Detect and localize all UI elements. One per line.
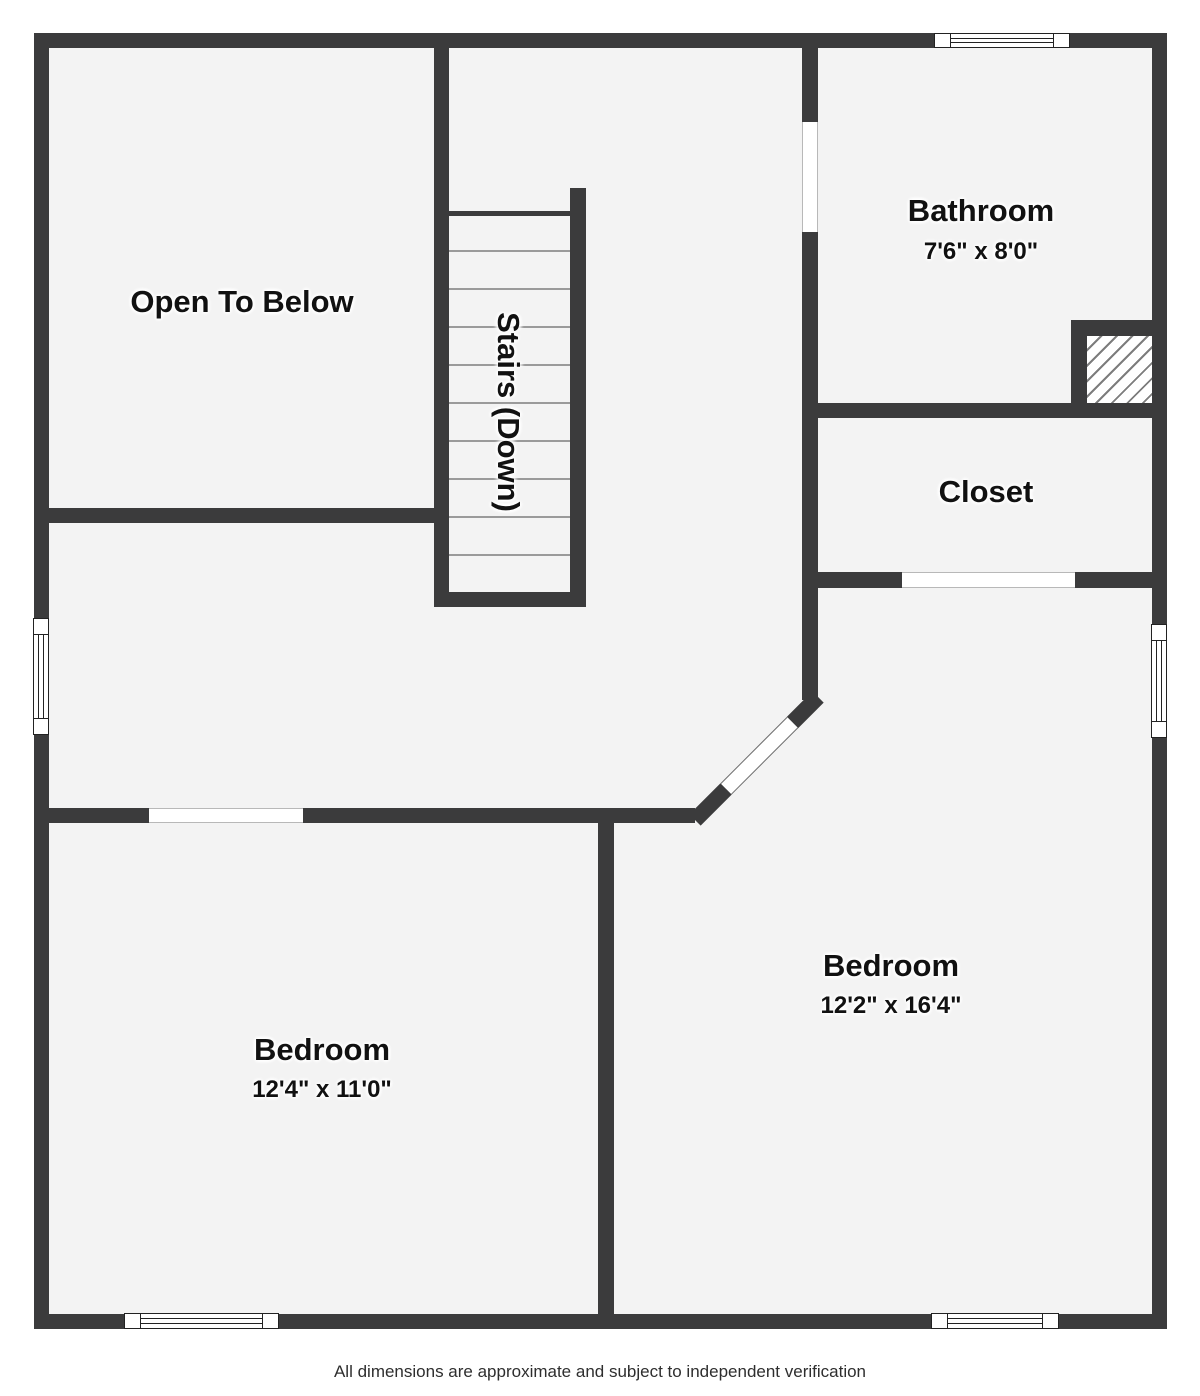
room-label-stairs: Stairs (Down)	[490, 312, 526, 512]
closet-bottom-wall-left	[818, 572, 902, 588]
stair-tread-line	[449, 288, 570, 290]
right-wall-window	[1151, 624, 1167, 738]
room-label-bathroom: Bathroom	[908, 193, 1054, 229]
stairs-bottom-wall	[434, 592, 586, 607]
stairs-top-edge	[449, 211, 570, 216]
window-end	[125, 1314, 141, 1328]
stair-tread-line	[449, 516, 570, 518]
bathroom-left-wall-upper	[802, 48, 818, 122]
room-label-bedroom-right: Bedroom	[823, 948, 959, 984]
closet-bottom-wall-right	[1075, 572, 1152, 588]
bedroom-top-wall-right	[303, 808, 695, 823]
room-label-bedroom-left: Bedroom	[254, 1032, 390, 1068]
window-glass	[34, 635, 48, 718]
window-glass	[1152, 641, 1166, 721]
bathroom-closet-divider-wall	[818, 403, 1152, 418]
room-label-closet: Closet	[939, 474, 1034, 510]
window-end	[1042, 1314, 1058, 1328]
bedroom-left-door-opening	[149, 808, 303, 823]
room-label-open-to-below: Open To Below	[130, 284, 353, 320]
bedroom-left-window	[124, 1313, 279, 1329]
window-end	[1152, 625, 1166, 641]
stair-tread-line	[449, 250, 570, 252]
window-end	[935, 34, 951, 47]
window-end	[34, 619, 48, 635]
window-glass	[951, 34, 1053, 47]
bedroom-divider-wall	[598, 823, 614, 1314]
bathroom-door-opening	[802, 122, 818, 232]
hall-right-wall-below-closet	[802, 572, 818, 700]
floorplan: Open To Below Stairs (Down) Bathroom 7'6…	[0, 0, 1200, 1396]
window-end	[1152, 721, 1166, 737]
window-glass	[141, 1314, 262, 1328]
window-end	[1053, 34, 1069, 47]
closet-door-opening	[902, 572, 1075, 588]
disclaimer-text: All dimensions are approximate and subje…	[0, 1362, 1200, 1382]
bedroom-right-window	[931, 1313, 1059, 1329]
bedroom-top-wall-left	[34, 808, 149, 823]
window-end	[34, 718, 48, 734]
bathroom-left-wall-lower	[802, 232, 818, 572]
stairs-right-wall	[570, 188, 586, 607]
room-dims-bedroom-left: 12'4" x 11'0"	[252, 1076, 392, 1104]
open-to-below-bottom-wall	[34, 508, 449, 523]
bathroom-window	[934, 33, 1070, 48]
flue-box-top-wall	[1071, 320, 1152, 336]
window-end	[262, 1314, 278, 1328]
room-dims-bedroom-right: 12'2" x 16'4"	[821, 992, 962, 1020]
room-dims-bathroom: 7'6" x 8'0"	[924, 238, 1038, 266]
stair-tread-line	[449, 554, 570, 556]
window-end	[932, 1314, 948, 1328]
flue-hatch-area	[1087, 336, 1152, 403]
left-wall-window	[33, 618, 49, 735]
window-glass	[948, 1314, 1042, 1328]
stairs-left-wall	[434, 48, 449, 607]
